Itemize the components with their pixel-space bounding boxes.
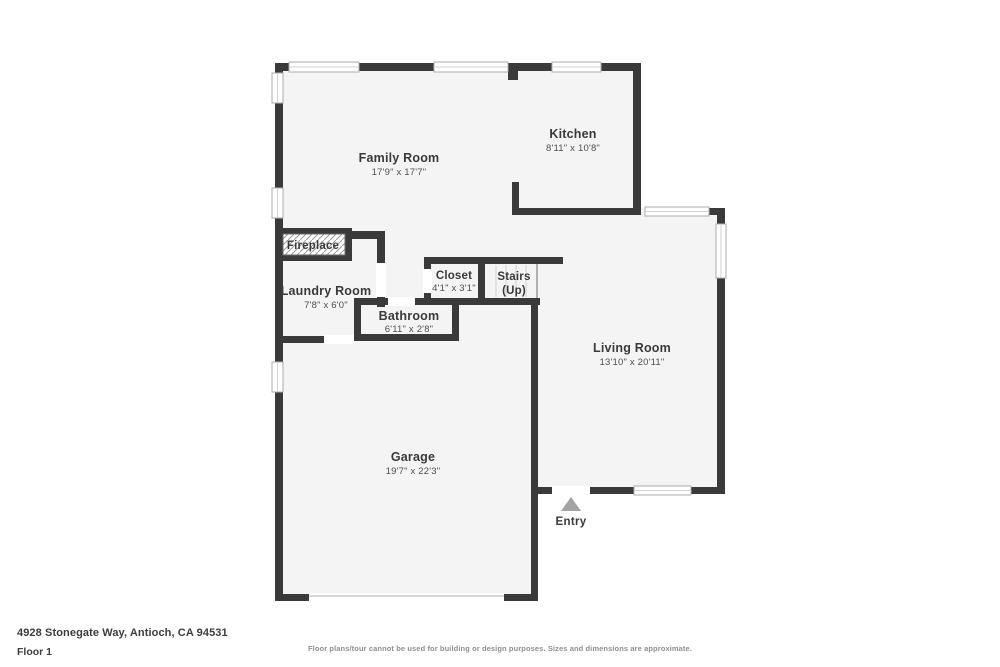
garage-door <box>309 593 504 602</box>
wall <box>354 334 459 341</box>
wall <box>424 257 563 264</box>
wall <box>691 487 725 494</box>
wall <box>377 231 385 264</box>
wall <box>590 487 634 494</box>
disclaimer-text: Floor plans/tour cannot be used for buil… <box>0 644 1000 653</box>
floor-plan-drawing: Fireplace Family Room 17'9" x 17'7" Kitc… <box>0 0 1000 667</box>
wall <box>424 257 431 270</box>
room-label: Living Room <box>593 341 671 355</box>
room-dimensions: 7'8" x 6'0" <box>304 300 348 311</box>
wall <box>508 71 518 80</box>
wall <box>633 63 641 215</box>
door-opening <box>423 269 432 293</box>
wall <box>531 298 538 601</box>
door-opening <box>376 263 386 297</box>
room-label: Stairs <box>497 271 530 283</box>
room-garage: Garage 19'7" x 22'3" <box>386 450 441 477</box>
room-living-room: Living Room 13'10" x 20'11" <box>593 341 671 368</box>
room-label: Laundry Room <box>281 284 372 298</box>
floor-plan-page: Fireplace Family Room 17'9" x 17'7" Kitc… <box>0 0 1000 667</box>
room-dimensions: 13'10" x 20'11" <box>600 357 665 368</box>
wall <box>478 257 485 305</box>
fireplace: Fireplace <box>276 228 352 261</box>
room-label: Family Room <box>359 151 440 165</box>
room-dimensions: 4'1" x 3'1" <box>432 283 476 294</box>
room-dimensions: 17'9" x 17'7" <box>372 167 427 178</box>
room-sublabel: (Up) <box>502 285 526 297</box>
entry-marker: Entry <box>556 497 587 528</box>
room-bathroom: Bathroom 6'11" x 2'8" <box>379 309 440 335</box>
wall <box>415 298 540 305</box>
room-label: Kitchen <box>549 127 596 141</box>
wall <box>275 594 309 601</box>
wall <box>275 63 283 601</box>
wall <box>275 336 324 343</box>
room-label: Garage <box>391 450 435 464</box>
wall <box>354 298 388 305</box>
room-dimensions: 6'11" x 2'8" <box>385 324 434 335</box>
room-dimensions: 8'11" x 10'8" <box>546 143 600 154</box>
room-dimensions: 19'7" x 22'3" <box>386 466 441 477</box>
door-opening <box>324 335 354 344</box>
entry-arrow-icon <box>561 497 581 511</box>
entry-label: Entry <box>556 516 587 528</box>
property-address: 4928 Stonegate Way, Antioch, CA 94531 <box>17 627 228 639</box>
entry-door-opening <box>552 486 590 496</box>
fireplace-label: Fireplace <box>287 240 339 252</box>
room-kitchen: Kitchen 8'11" x 10'8" <box>546 127 600 154</box>
wall <box>504 594 538 601</box>
room-label: Bathroom <box>379 309 440 323</box>
door-opening <box>388 297 415 306</box>
wall <box>512 182 519 215</box>
room-label: Closet <box>436 270 472 282</box>
wall <box>512 208 641 215</box>
floor-area <box>275 63 725 601</box>
wall <box>424 292 431 305</box>
